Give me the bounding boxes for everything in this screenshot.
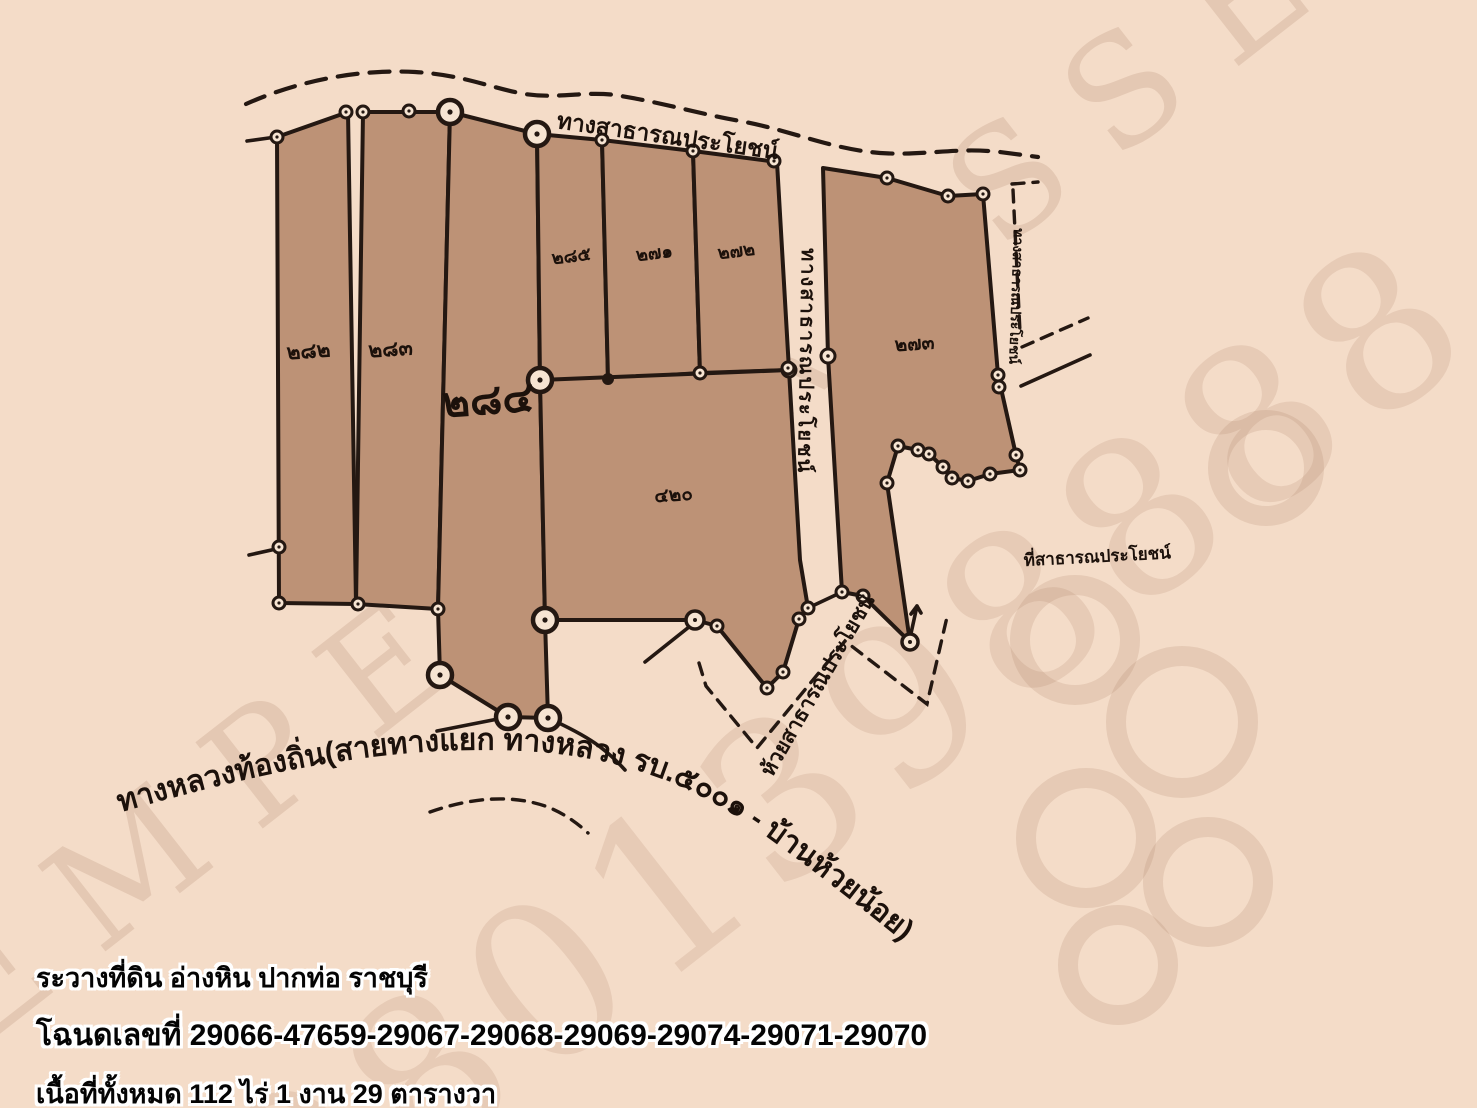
left-edge-tick-line: [249, 549, 276, 555]
highway-dashed-centerline: [430, 799, 588, 833]
public-land-label: ที่สาธารณประโยชน์: [1023, 540, 1172, 570]
land-plot-map-page: EMPERORASSET 0801398888: [0, 0, 1477, 1108]
right-solid-diagonal-line: [1021, 355, 1090, 386]
deed-numbers-line: โฉนดเลขที่ 29066-47659-29067-29068-29069…: [36, 1012, 927, 1059]
right-boundary-dashed-top: [1012, 182, 1038, 184]
watermark-swirls: [1020, 420, 1314, 1015]
local-highway-label: ทางหลวงท้องถิ่น(สายทางแยก ทางหลวง รบ.๕๐๐…: [113, 724, 920, 947]
parcel-shapes: [277, 112, 1020, 718]
survey-sheet-line: ระวางที่ดิน อ่างหิน ปากท่อ ราชบุรี: [36, 956, 927, 999]
parcel-282-label: ๒๘๒: [286, 339, 331, 365]
middle-public-road-label: ทางสาธารณประโยชน์: [793, 248, 821, 475]
deed-info-block: ระวางที่ดิน อ่างหิน ปากท่อ ราชบุรี โฉนดเ…: [36, 956, 927, 1108]
parcel-420-label: ๔๒๐: [654, 484, 694, 508]
survey-tie-line: [645, 623, 694, 662]
parcel-273-shape: [823, 168, 1020, 642]
parcel-273-label: ๒๗๓: [894, 333, 935, 357]
parcel-283-label: ๒๘๓: [368, 336, 414, 362]
cadastral-map-canvas: ๒๘๒ ๒๘๓ ๒๘๔ ๒๘๕ ๒๗๑ ๒๗๒ ๒๗๓ ๔๒๐ ทางสาธาร…: [0, 0, 1477, 1108]
right-boundary-dashed-diagonal: [1022, 318, 1088, 347]
parcel-284-label: ๒๘๔: [441, 373, 536, 426]
total-area-line: เนื้อที่ทั้งหมด 112 ไร่ 1 งาน 29 ตารางวา: [36, 1072, 927, 1108]
parcel-272-shape: [693, 151, 789, 373]
